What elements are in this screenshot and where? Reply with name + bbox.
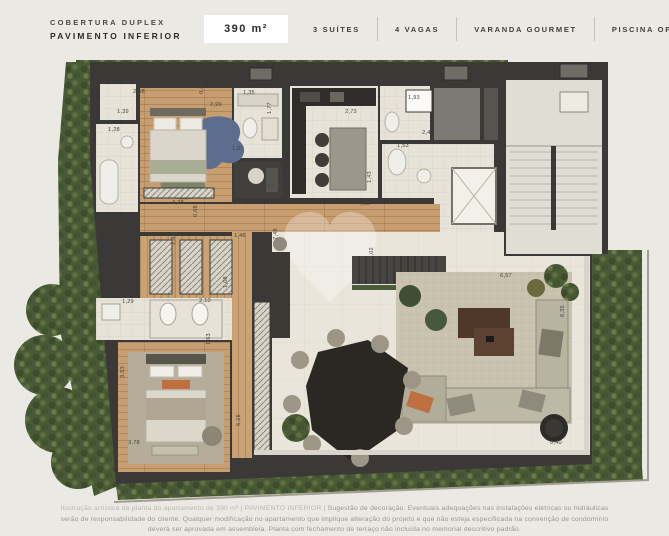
dimension-label: 7,48 <box>273 228 279 240</box>
closet-strip <box>254 302 270 452</box>
dimension-label: 1,93 <box>408 95 420 101</box>
dimension-label: 1,35 <box>243 90 255 96</box>
caption-prefix: Ilustração artística da planta do aparta… <box>60 505 327 512</box>
dimension-label: 1,67 <box>262 184 274 190</box>
service-room <box>434 88 480 140</box>
dimension-label: 2,56 <box>89 132 95 144</box>
dimension-label: 0,68 <box>193 205 199 217</box>
dimension-label: 1,28 <box>108 127 120 133</box>
dimension-label: 0,40 <box>550 440 562 446</box>
dimension-label: 1,88 <box>171 233 177 245</box>
corridor-vertical <box>232 232 252 458</box>
dimension-label: 6,35 <box>560 305 566 317</box>
dimension-label: 3,28 <box>172 200 184 206</box>
dimension-label: 1,39 <box>117 109 129 115</box>
dimension-label: 1,10 <box>93 80 99 92</box>
dimension-label: 0,44 <box>199 82 205 94</box>
dimension-label: 2,02 <box>369 247 375 259</box>
dimension-label: 1,70 <box>231 200 243 206</box>
dimension-label: 3,78 <box>128 440 140 446</box>
dimension-label: 3,57 <box>281 181 287 193</box>
dimension-label: 2,58 <box>133 89 145 95</box>
dimension-label: 1,63 <box>206 333 212 345</box>
dimension-label: 1,77 <box>267 102 273 114</box>
dimension-label: 1,46 <box>234 233 246 239</box>
dimension-label: 2,99 <box>210 102 222 108</box>
dimension-label: 2,47 <box>422 130 434 136</box>
dimension-label: 1,43 <box>367 171 373 183</box>
dimension-label: 1,10 <box>236 180 242 192</box>
dimension-label: 6,16 <box>236 414 242 426</box>
dimension-label: 1,07 <box>232 146 244 152</box>
dimension-label: 1,53 <box>397 143 409 149</box>
dimension-label: 2,10 <box>199 298 211 304</box>
dimension-label: 1,29 <box>122 299 134 305</box>
dimension-label: 1,08 <box>223 276 229 288</box>
shaft <box>484 88 498 140</box>
disclaimer-caption: Ilustração artística da planta do aparta… <box>0 504 669 536</box>
dimension-label: 4,05 <box>358 201 370 207</box>
dimension-label: 6,57 <box>500 273 512 279</box>
floor-plan: 1,102,580,442,991,391,351,771,282,561,07… <box>0 0 669 535</box>
dimension-label: 3,53 <box>120 366 126 378</box>
dimension-label: 2,73 <box>345 109 357 115</box>
